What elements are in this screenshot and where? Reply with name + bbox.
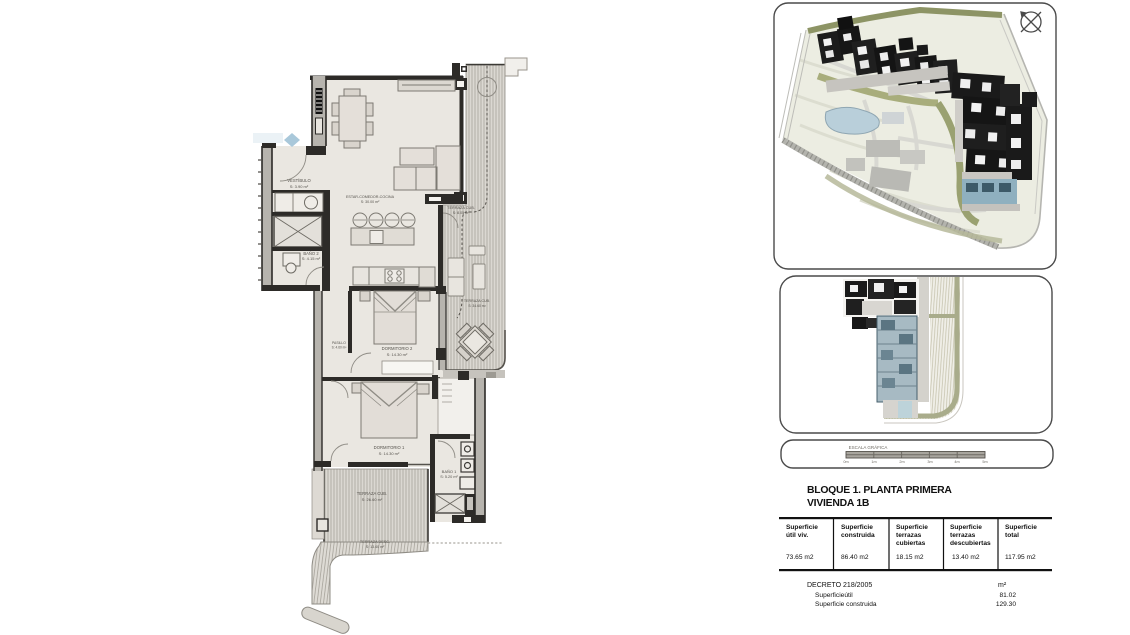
svg-text:DORMITORIO 1: DORMITORIO 1 — [374, 445, 405, 450]
svg-text:117.95 m2: 117.95 m2 — [1005, 554, 1036, 561]
svg-text:total: total — [1005, 532, 1019, 539]
svg-text:S: 13.40 m²: S: 13.40 m² — [366, 545, 385, 549]
svg-text:S: 4.15 m²: S: 4.15 m² — [302, 256, 321, 261]
svg-text:BLOQUE 1. PLANTA PRIMERA: BLOQUE 1. PLANTA PRIMERA — [807, 485, 952, 496]
svg-text:13.40 m2: 13.40 m2 — [952, 554, 980, 561]
svg-text:86.40 m2: 86.40 m2 — [841, 554, 869, 561]
svg-text:S: 26.60 m²: S: 26.60 m² — [362, 497, 383, 502]
svg-text:S: 14.30 m²: S: 14.30 m² — [379, 451, 400, 456]
svg-text:S: 3.90 m²: S: 3.90 m² — [290, 184, 309, 189]
svg-text:DECRETO 218/2005: DECRETO 218/2005 — [807, 582, 872, 589]
svg-text:m²: m² — [998, 582, 1007, 589]
svg-text:ESTAR-COMEDOR-COCINA: ESTAR-COMEDOR-COCINA — [346, 195, 395, 199]
svg-text:terrazas: terrazas — [950, 532, 976, 539]
svg-text:Superficie: Superficie — [786, 524, 818, 531]
svg-text:terrazas: terrazas — [896, 532, 922, 539]
svg-text:S: 14.30 m²: S: 14.30 m² — [387, 352, 408, 357]
svg-text:PASILLO: PASILLO — [332, 341, 346, 345]
svg-text:0m: 0m — [843, 460, 848, 464]
svg-text:cubiertas: cubiertas — [896, 540, 926, 547]
svg-text:Superficieútil: Superficieútil — [815, 592, 853, 599]
svg-text:TERRAZA CUB.: TERRAZA CUB. — [447, 206, 475, 210]
svg-text:descubiertas: descubiertas — [950, 540, 991, 547]
svg-text:útil viv.: útil viv. — [786, 532, 808, 539]
svg-text:S: 4.60 m²: S: 4.60 m² — [332, 346, 347, 350]
svg-text:VESTÍBULO: VESTÍBULO — [287, 178, 311, 183]
svg-text:S: 8.05 m²: S: 8.05 m² — [453, 211, 470, 215]
svg-text:Superficie: Superficie — [896, 524, 928, 531]
svg-text:VIVIENDA 1B: VIVIENDA 1B — [807, 498, 870, 509]
svg-text:ESCALA GRÁFICA: ESCALA GRÁFICA — [849, 444, 888, 450]
svg-text:construida: construida — [841, 532, 875, 539]
svg-text:S: 34.60 m²: S: 34.60 m² — [468, 304, 486, 308]
svg-text:TERRAZA DESC.: TERRAZA DESC. — [360, 540, 390, 544]
svg-text:Superficie: Superficie — [1005, 524, 1037, 531]
svg-text:Superficie construida: Superficie construida — [815, 601, 877, 608]
svg-text:73.65 m2: 73.65 m2 — [786, 554, 814, 561]
svg-text:Superficie: Superficie — [950, 524, 982, 531]
svg-text:TERRAZA CUB.: TERRAZA CUB. — [464, 299, 490, 303]
svg-text:BAÑO 1: BAÑO 1 — [442, 469, 457, 474]
svg-text:18.15 m2: 18.15 m2 — [896, 554, 924, 561]
svg-text:129.30: 129.30 — [996, 601, 1017, 608]
svg-text:3m: 3m — [927, 460, 932, 464]
svg-text:5m: 5m — [982, 460, 987, 464]
svg-text:S: 5.20 m²: S: 5.20 m² — [440, 475, 458, 479]
svg-text:TERRAZA CUB.: TERRAZA CUB. — [357, 491, 387, 496]
svg-text:4m: 4m — [954, 460, 959, 464]
svg-text:1m: 1m — [871, 460, 876, 464]
svg-text:81.02: 81.02 — [999, 592, 1016, 599]
svg-text:Superficie: Superficie — [841, 524, 873, 531]
svg-text:2m: 2m — [899, 460, 904, 464]
svg-text:DORMITORIO 2: DORMITORIO 2 — [382, 346, 413, 351]
svg-text:S: 30.00 m²: S: 30.00 m² — [361, 200, 380, 204]
